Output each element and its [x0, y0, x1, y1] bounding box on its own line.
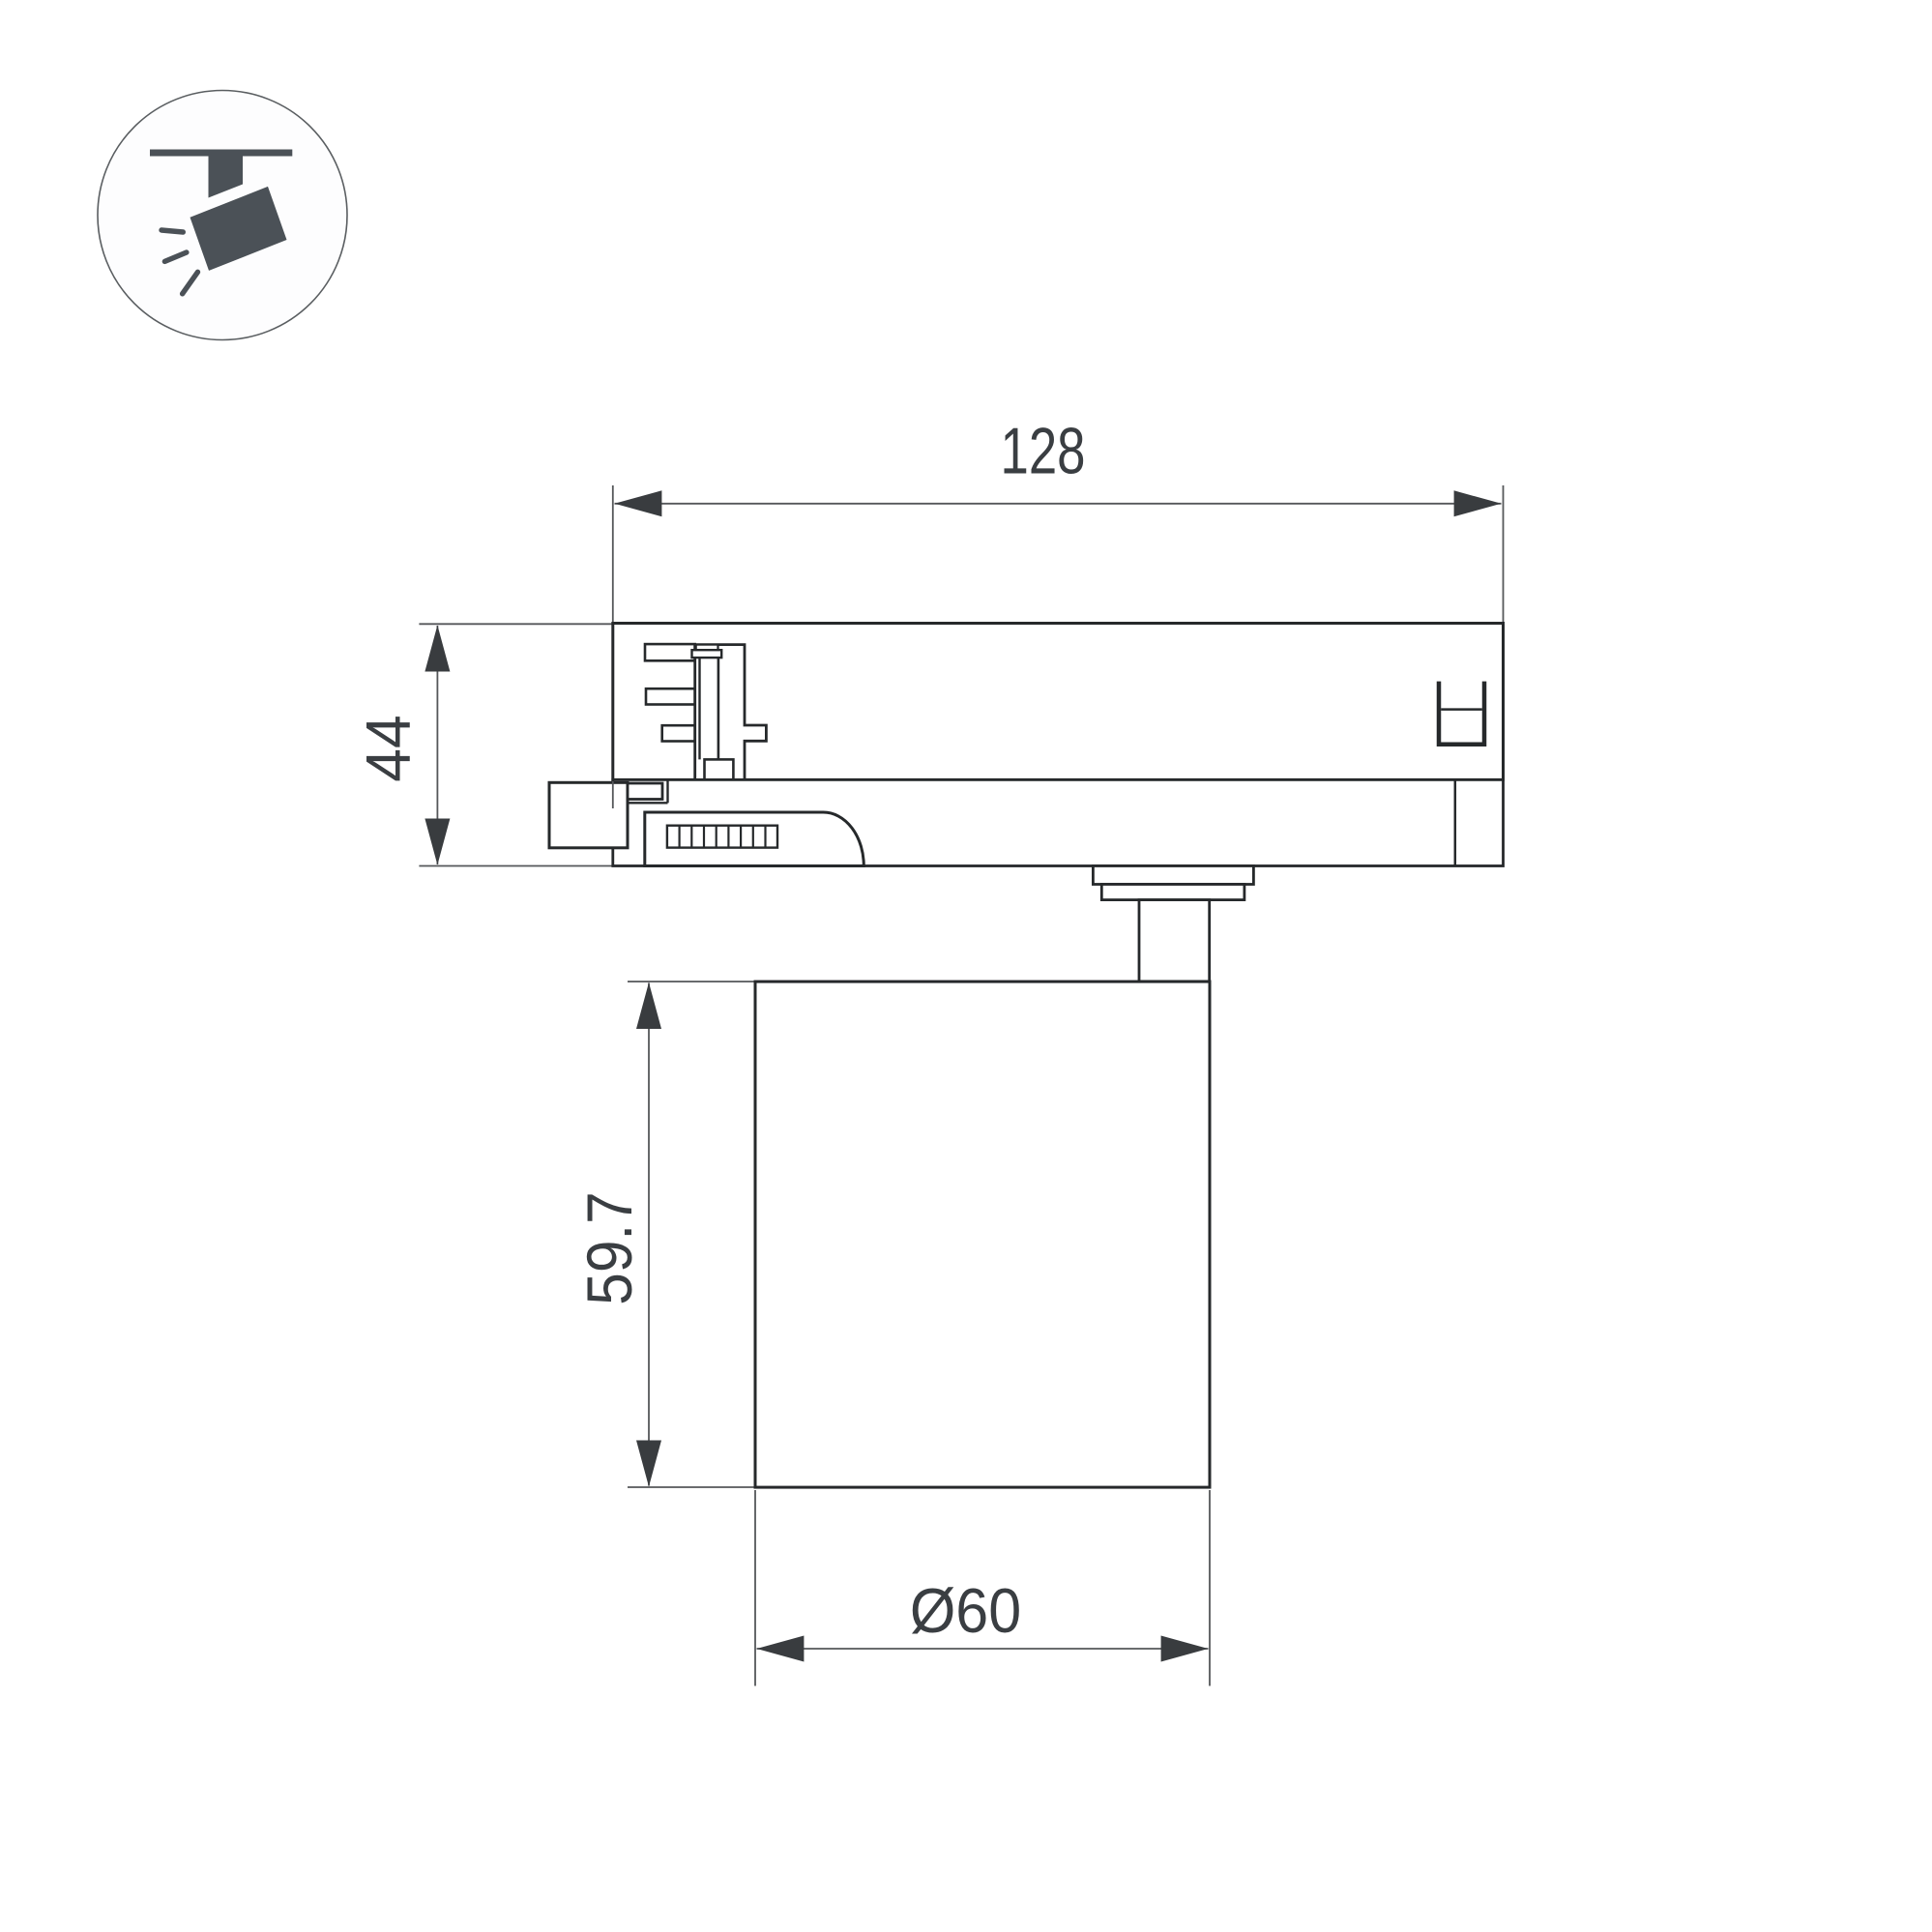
- svg-text:44: 44: [352, 715, 423, 782]
- svg-text:128: 128: [1001, 415, 1086, 487]
- svg-text:Ø60: Ø60: [910, 1576, 1021, 1646]
- svg-text:59.7: 59.7: [573, 1191, 645, 1305]
